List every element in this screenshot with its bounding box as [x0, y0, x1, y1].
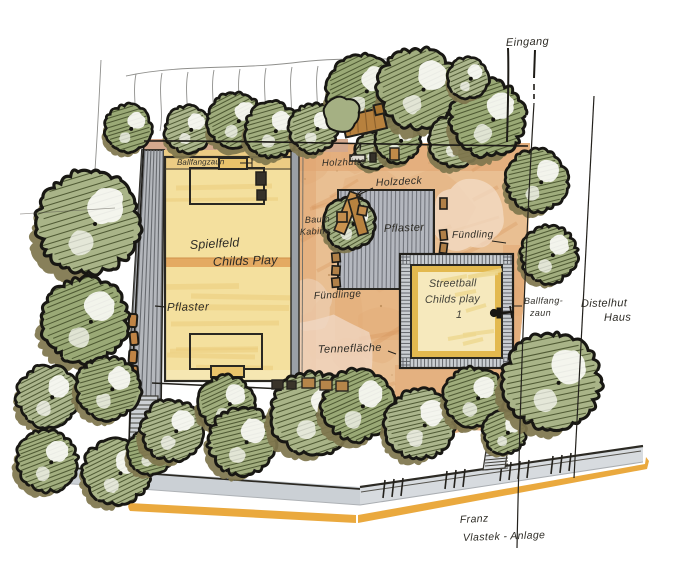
svg-text:Distelhut: Distelhut: [581, 297, 628, 310]
svg-text:Pflaster: Pflaster: [167, 301, 210, 314]
svg-text:Fündling: Fündling: [452, 229, 494, 241]
svg-text:Childs play: Childs play: [425, 293, 481, 306]
svg-text:Streetball: Streetball: [429, 277, 477, 290]
svg-text:zaun: zaun: [529, 308, 551, 318]
svg-text:Eingang: Eingang: [506, 35, 550, 49]
svg-text:Holzhütte: Holzhütte: [322, 156, 366, 169]
svg-text:Pflaster: Pflaster: [384, 222, 426, 235]
svg-text:Childs Play: Childs Play: [213, 253, 279, 269]
svg-text:Spielfeld: Spielfeld: [189, 235, 240, 252]
svg-text:Tennefläche: Tennefläche: [318, 342, 382, 356]
svg-text:Baum: Baum: [305, 214, 331, 225]
svg-text:Haus: Haus: [604, 312, 632, 324]
svg-text:1: 1: [456, 309, 462, 321]
svg-text:Franz: Franz: [460, 512, 490, 526]
svg-text:Kabine: Kabine: [300, 225, 331, 237]
svg-text:Ballfang-: Ballfang-: [524, 295, 563, 306]
svg-text:Holzdeck: Holzdeck: [376, 175, 423, 189]
svg-text:Ballfangzaun: Ballfangzaun: [177, 157, 225, 167]
